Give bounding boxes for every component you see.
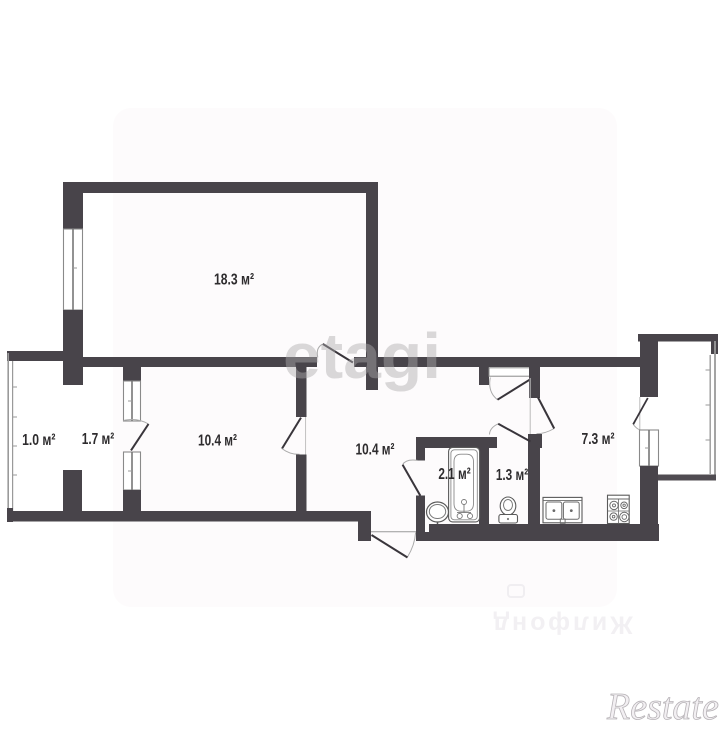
svg-text:10.4 м²: 10.4 м²	[198, 433, 237, 450]
svg-text:1.0 м²: 1.0 м²	[22, 432, 55, 449]
svg-text:7.3 м²: 7.3 м²	[582, 431, 615, 448]
svg-text:Restate: Restate	[606, 686, 719, 725]
svg-text:1.3 м²: 1.3 м²	[496, 467, 528, 484]
svg-text:Жилфонд: Жилфонд	[490, 610, 634, 638]
svg-text:etagi: etagi	[283, 320, 441, 392]
svg-text:18.3 м²: 18.3 м²	[214, 272, 254, 289]
svg-text:10.4 м²: 10.4 м²	[356, 442, 395, 459]
svg-text:2.1 м²: 2.1 м²	[438, 466, 470, 483]
svg-text:1.7 м²: 1.7 м²	[82, 431, 115, 448]
